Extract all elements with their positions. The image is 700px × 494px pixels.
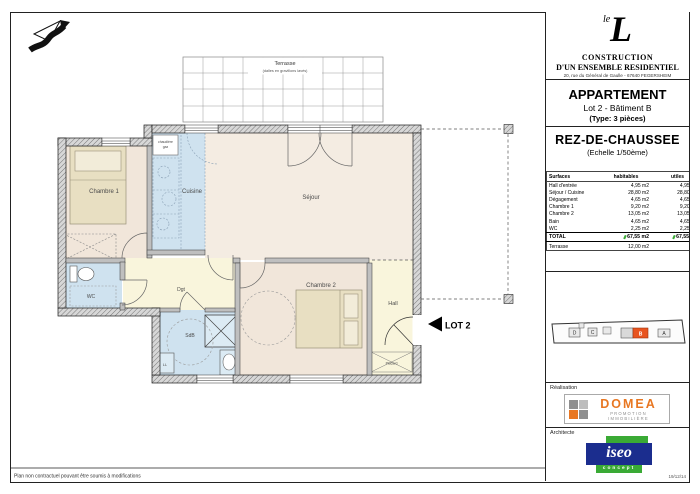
siteplan-section: D C B A	[546, 272, 689, 383]
boundary-post	[504, 125, 513, 134]
label-chaudiere-2: gaz	[163, 145, 169, 149]
builder-address: 20, rue du Général de Gaulle - 67640 FEG…	[546, 73, 689, 78]
check-icon	[623, 234, 626, 238]
title-block: le L CONSTRUCTION D'UN ENSEMBLE RESIDENT…	[545, 12, 689, 481]
bed-double-icon	[296, 290, 362, 348]
builder-line1: CONSTRUCTION	[546, 53, 689, 62]
surface-row: Dégagement 4,65 m2 4,65 m2	[547, 196, 690, 203]
surface-table-header-row: Surfaces habitables utiles	[547, 172, 690, 182]
siteplan-label-c: C	[591, 330, 595, 336]
label-cuisine: Cuisine	[182, 189, 203, 195]
architecte-label: Architecte	[550, 430, 574, 436]
domea-brand: DOMEA	[592, 398, 665, 410]
label-chaudiere-1: chaudière	[158, 140, 173, 144]
level-title: REZ-DE-CHAUSSEE	[546, 133, 689, 147]
builder-logo-section: le L CONSTRUCTION D'UN ENSEMBLE RESIDENT…	[546, 12, 689, 80]
surface-row: Hall d'entrée 4,95 m2 4,95 m2	[547, 182, 690, 190]
label-wc: WC	[87, 294, 96, 300]
realisation-label: Réalisation	[550, 385, 577, 391]
lot-label: LOT 2	[445, 321, 471, 331]
surface-total-row: TOTAL 67,55 m2 67,55 m2	[547, 233, 690, 241]
apartment-type: (Type: 3 pièces)	[546, 114, 689, 123]
terrace: Terrasse (dalles en gravillons lavés)	[183, 57, 383, 122]
terrace-sublabel: (dalles en gravillons lavés)	[263, 69, 308, 73]
boundary-post	[504, 295, 513, 304]
check-icon	[672, 234, 675, 238]
iseo-logo: iseo concept	[584, 436, 654, 473]
apartment-section: APPARTEMENT Lot 2 - Bâtiment B (Type: 3 …	[546, 80, 689, 127]
apartment-subtitle: Lot 2 - Bâtiment B	[546, 103, 689, 113]
surface-col-habitables: habitables	[601, 172, 655, 182]
surface-row: Bain 4,65 m2 4,65 m2	[547, 218, 690, 225]
iseo-top-bar	[606, 436, 648, 443]
siteplan-label-b: B	[639, 332, 643, 338]
north-arrow-icon	[30, 20, 70, 50]
builder-logo-icon: L	[610, 12, 632, 50]
level-scale: (Echelle 1/50ème)	[546, 148, 689, 157]
shower-icon	[205, 315, 237, 347]
terrace-label: Terrasse	[274, 61, 295, 67]
surface-row: WC 2,25 m2 2,25 m2	[547, 225, 690, 233]
surface-col-utiles: utiles	[655, 172, 689, 182]
label-hall: Hall	[388, 301, 397, 307]
surface-row: Séjour / Cuisine 28,80 m2 28,80 m2	[547, 189, 690, 196]
builder-line2: D'UN ENSEMBLE RESIDENTIEL	[546, 63, 689, 72]
surface-terrasse-row: Terrasse 12,00 m2	[547, 241, 690, 251]
bed-single-icon	[70, 146, 126, 224]
label-placard: Placard	[386, 362, 398, 366]
realisation-section: Réalisation DOMEA PROMOTION IMMOBILIÈRE	[546, 383, 689, 428]
label-chambre1: Chambre 1	[89, 189, 119, 195]
domea-squares-icon	[569, 400, 588, 419]
surface-row: Chambre 2 13,05 m2 13,05 m2	[547, 211, 690, 218]
label-ll: LL	[163, 363, 167, 367]
label-chambre2: Chambre 2	[306, 283, 336, 289]
iseo-tagline: concept	[596, 465, 642, 473]
label-sdb: SdB	[185, 333, 195, 339]
footnote-text: Plan non contractuel pouvant être soumis…	[14, 474, 141, 480]
surface-table: Surfaces habitables utiles Hall d'entrée…	[546, 171, 689, 251]
label-sejour: Séjour	[302, 195, 319, 201]
architecte-section: Architecte iseo concept 19/12/14	[546, 428, 689, 481]
footnote-area: Plan non contractuel pouvant être soumis…	[10, 468, 545, 480]
siteplan-label-d: D	[573, 331, 577, 337]
siteplan-strip: D C B A	[546, 272, 689, 382]
apartment-title: APPARTEMENT	[546, 87, 689, 102]
plan-sheet: Terrasse (dalles en gravillons lavés)	[0, 0, 700, 494]
domea-logo: DOMEA PROMOTION IMMOBILIÈRE	[564, 394, 670, 424]
label-dgt: Dgt	[177, 287, 185, 293]
room-dgt	[123, 258, 237, 310]
lot-marker: LOT 2	[428, 317, 471, 332]
room-hall	[369, 260, 415, 377]
surface-row: Chambre 1 9,20 m2 9,20 m2	[547, 204, 690, 211]
level-section: REZ-DE-CHAUSSEE (Echelle 1/50ème) Surfac…	[546, 127, 689, 272]
lot-arrow-icon	[428, 317, 442, 332]
domea-tagline: PROMOTION IMMOBILIÈRE	[592, 411, 665, 421]
iseo-brand: iseo	[586, 443, 652, 465]
surface-col-surfaces: Surfaces	[547, 172, 602, 182]
toilet-icon	[70, 266, 94, 282]
plan-date: 19/12/14	[668, 474, 686, 479]
